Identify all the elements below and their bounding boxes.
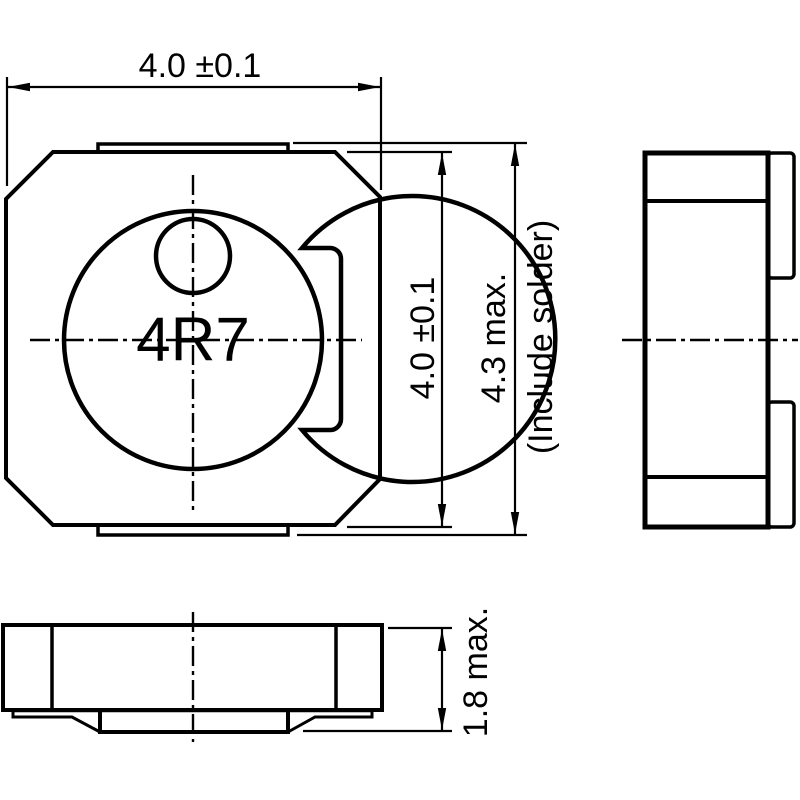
side-view-bottom-terminal [768, 402, 794, 527]
height-dimension-label: 4.0 ±0.1 [404, 277, 442, 400]
width-dimension-label: 4.0 ±0.1 [139, 47, 262, 85]
left-electrode-skirt [13, 711, 100, 732]
side-view [622, 153, 798, 527]
height-dimension: 4.0 ±0.1 [347, 152, 452, 527]
front-view [3, 612, 382, 742]
width-dimension: 4.0 ±0.1 [7, 47, 381, 190]
side-view-top-terminal [768, 153, 794, 278]
thickness-dimension-label: 1.8 max. [457, 607, 495, 737]
technical-drawing: 4R7 4.0 ±0.1 4.0 ±0.1 4.3 max. (Include … [0, 0, 800, 800]
part-marking: 4R7 [136, 306, 250, 375]
top-view: 4R7 [6, 144, 555, 535]
right-electrode-skirt [288, 711, 372, 732]
overall-height-dimension-note: (Include solder) [522, 220, 560, 454]
overall-height-dimension-label: 4.3 max. [475, 273, 513, 403]
